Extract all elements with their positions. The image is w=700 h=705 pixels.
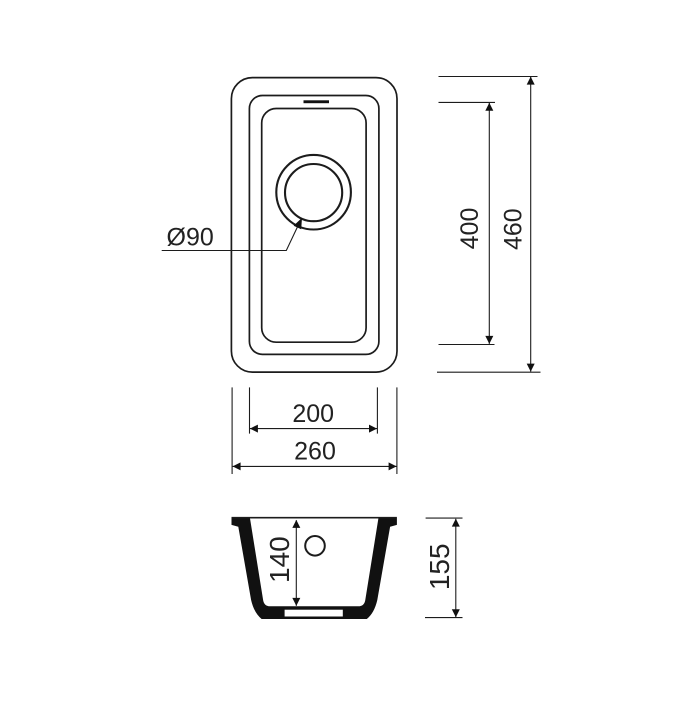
svg-text:155: 155 — [424, 543, 455, 590]
svg-text:Ø90: Ø90 — [167, 223, 214, 251]
svg-text:140: 140 — [264, 536, 295, 583]
svg-text:460: 460 — [499, 208, 527, 250]
svg-text:200: 200 — [292, 400, 334, 428]
svg-text:260: 260 — [294, 438, 336, 466]
svg-text:400: 400 — [456, 208, 484, 250]
